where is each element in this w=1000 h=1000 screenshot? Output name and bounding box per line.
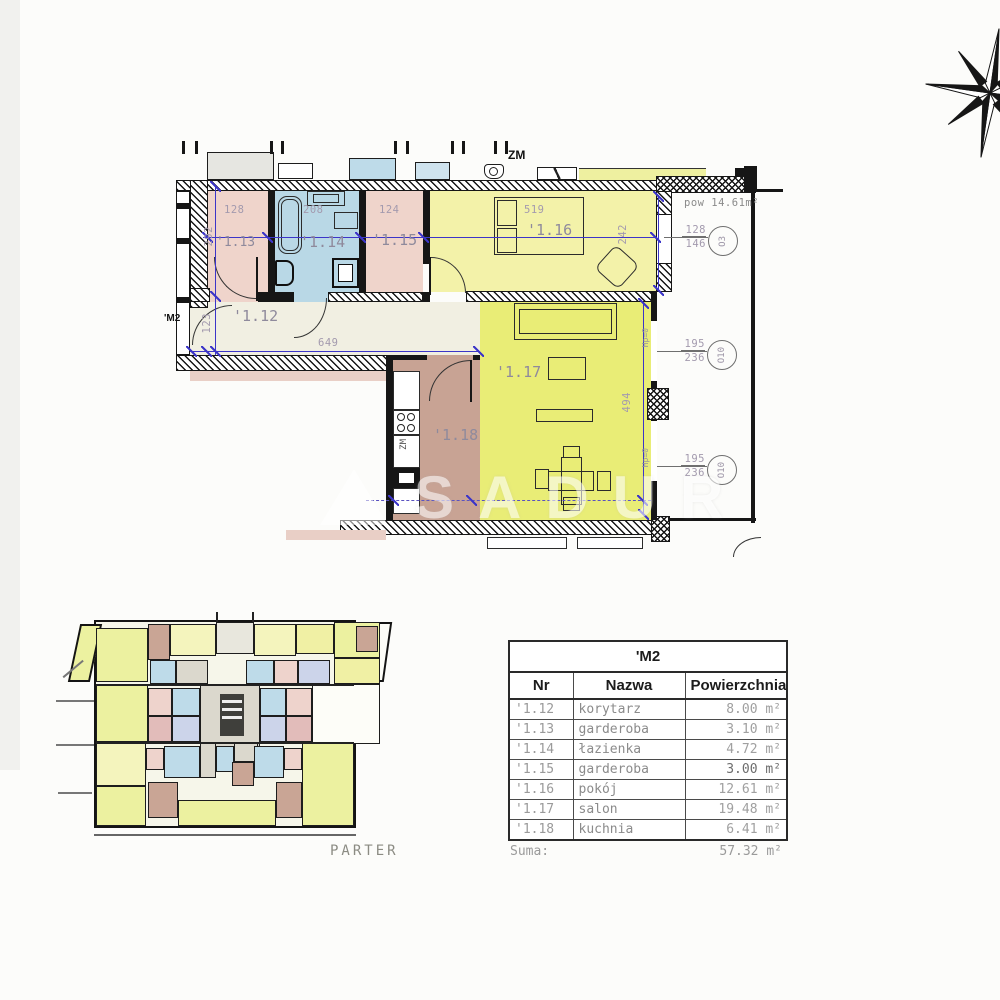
overview-room-block xyxy=(274,660,298,684)
overview-room-block xyxy=(356,626,378,652)
dim-tick xyxy=(201,346,212,357)
window2-h: 236 xyxy=(679,352,705,364)
room-name: garderoba xyxy=(573,720,685,740)
room-name: pokój xyxy=(573,780,685,800)
wall-kitchen-top-a xyxy=(393,355,427,360)
sum-value: 57.32 m² xyxy=(719,844,782,859)
wall-stub xyxy=(505,141,508,154)
bath-cabinet xyxy=(334,212,358,229)
stove-burner xyxy=(397,424,405,432)
overview-room-block xyxy=(254,746,284,778)
area-value: 4.72 xyxy=(726,742,757,757)
room-nr: '1.13 xyxy=(509,720,573,740)
overview-caption: PARTER xyxy=(330,843,399,859)
overview-room-block xyxy=(302,742,354,826)
dim-128: 128 xyxy=(224,204,244,216)
room-area: 12.61 m² xyxy=(685,780,787,800)
overview-room-block xyxy=(286,716,312,742)
neighbor-door-arc xyxy=(733,537,761,557)
wall-bottom xyxy=(340,520,670,535)
area-value: 6.41 xyxy=(726,822,757,837)
table-row: '1.18 kuchnia 6.41 m² xyxy=(509,820,787,841)
overview-room-block xyxy=(146,748,164,770)
wall-1-13-1-14 xyxy=(268,191,275,302)
room-area: 6.41 m² xyxy=(685,820,787,841)
wall-corridor-top-b xyxy=(328,292,423,302)
dim-line-dashed xyxy=(366,500,651,501)
area-unit: m² xyxy=(765,742,781,757)
neighbor-bottom-fixture-2 xyxy=(577,537,643,549)
stove-burner xyxy=(397,413,405,421)
dim-tick xyxy=(388,495,399,506)
table-sum-row: Suma: 57.32 m² xyxy=(508,841,786,859)
kitchen-zm-label: ZM xyxy=(399,439,409,450)
wall-1-14-1-15 xyxy=(359,191,366,302)
neighbor-strip-below xyxy=(190,371,390,381)
wall-stub xyxy=(451,141,454,154)
room-area: 19.48 m² xyxy=(685,800,787,820)
wall-stub xyxy=(462,141,465,154)
stove-burner xyxy=(407,424,415,432)
overview-room-block xyxy=(164,746,200,778)
area-unit: m² xyxy=(765,722,781,737)
dim-tick xyxy=(653,191,664,202)
room-area: 3.00 m² xyxy=(685,760,787,780)
room-name: korytarz xyxy=(573,699,685,720)
col-header-name: Nazwa xyxy=(573,672,685,699)
overview-room-block xyxy=(260,688,286,716)
overview-room-block xyxy=(172,688,200,716)
dining-chair-right xyxy=(597,471,611,491)
wall-corridor-top-a xyxy=(258,292,294,302)
overview-survey-line xyxy=(56,744,94,746)
overview-room-block xyxy=(246,660,274,684)
dim-649: 649 xyxy=(318,337,338,349)
room-nr: '1.18 xyxy=(509,820,573,841)
window3-circle: O10 xyxy=(707,455,737,485)
tv-bench xyxy=(536,409,593,422)
wall-stub xyxy=(406,141,409,154)
zm-top-label: ZM xyxy=(508,148,525,162)
area-unit: m² xyxy=(765,702,781,717)
overview-survey-line xyxy=(56,700,94,702)
room-label-1-12: '1.12 xyxy=(233,307,278,325)
table-row: '1.16 pokój 12.61 m² xyxy=(509,780,787,800)
washbasin-inner xyxy=(313,194,339,203)
area-table-wrap: 'M2 Nr Nazwa Powierzchnia '1.12 korytarz… xyxy=(508,640,786,859)
area-value: 8.00 xyxy=(726,702,757,717)
col-header-area: Powierzchnia xyxy=(685,672,787,699)
area-value: 3.10 xyxy=(726,722,757,737)
room-nr: '1.14 xyxy=(509,740,573,760)
dim-tick xyxy=(355,232,366,243)
overview-entry-stub xyxy=(216,612,218,622)
area-unit: m² xyxy=(765,762,781,777)
kitchen-cabinet-a xyxy=(393,371,420,410)
dim-292: 292 xyxy=(203,226,215,246)
neighbor-top-gray xyxy=(207,152,274,180)
coffee-table xyxy=(548,357,586,380)
room-nr: '1.15 xyxy=(509,760,573,780)
terrace-right-line xyxy=(751,193,755,523)
dim-tick xyxy=(466,495,477,506)
wall-stub xyxy=(182,141,185,154)
overview-room-block xyxy=(284,748,302,770)
overview-entry-stub xyxy=(252,612,254,622)
dim-line-corridor xyxy=(190,351,480,352)
window3-h: 236 xyxy=(679,467,705,479)
dining-chair-top xyxy=(563,446,580,458)
neighbor-toilet-bowl xyxy=(489,167,498,176)
table-row: '1.12 korytarz 8.00 m² xyxy=(509,699,787,720)
wall-1-13-bottom-stub xyxy=(190,288,210,302)
dim-line-left-vertical xyxy=(215,186,216,355)
neighbor-top-fixture xyxy=(278,163,313,179)
sum-unit: m² xyxy=(766,844,782,859)
sill-note-1: Hp=0 xyxy=(641,328,650,347)
dim-tick xyxy=(262,232,273,243)
floor-plan-sheet: ZM pow 14.61m² xyxy=(0,0,1000,1000)
dim-519: 519 xyxy=(524,204,544,216)
window-bar xyxy=(176,238,190,244)
overview-room-block xyxy=(148,688,172,716)
dim-123: 123 xyxy=(201,313,213,333)
wall-stub xyxy=(270,141,273,154)
bed-pillow-2 xyxy=(497,228,517,253)
window2-code: O10 xyxy=(717,347,727,363)
overview-room-block xyxy=(148,782,178,818)
overview-room-block xyxy=(96,684,148,742)
area-value: 3.00 xyxy=(726,762,757,777)
neighbor-bottom-pink xyxy=(286,530,386,540)
neighbor-bottom-fixture-1 xyxy=(487,537,567,549)
dim-line-1-16-vertical xyxy=(658,196,659,290)
overview-survey-line xyxy=(58,792,92,794)
table-title: 'M2 xyxy=(509,641,787,672)
sum-label: Suma: xyxy=(510,844,549,859)
room-name: kuchnia xyxy=(573,820,685,841)
area-value: 12.61 xyxy=(718,782,757,797)
window1-w: 128 xyxy=(680,224,706,236)
room-nr: '1.16 xyxy=(509,780,573,800)
overview-room-block xyxy=(172,716,200,742)
terrace-area-label: pow 14.61m² xyxy=(684,197,759,209)
window2-fraction xyxy=(681,350,705,351)
door-leaf-1-13 xyxy=(256,257,258,301)
door-leaf-kitchen xyxy=(470,360,472,402)
dining-chair-left xyxy=(535,469,549,489)
overview-room-block xyxy=(286,688,312,716)
overview-base-line xyxy=(94,834,356,836)
neighbor-sink xyxy=(537,167,577,180)
wall-stub xyxy=(394,141,397,154)
dim-494: 494 xyxy=(621,392,633,412)
room-label-1-15: '1.15 xyxy=(372,231,417,249)
overview-room-block xyxy=(216,622,254,654)
sum-number: 57.32 xyxy=(719,844,758,859)
area-unit: m² xyxy=(765,822,781,837)
window3-w: 195 xyxy=(679,453,705,465)
room-label-1-13: '1.13 xyxy=(216,235,255,250)
dim-tick xyxy=(210,181,221,192)
kitchen-sink-inner xyxy=(399,473,414,483)
overview-room-block xyxy=(200,742,216,778)
window-bar xyxy=(176,203,190,209)
wall-salon-pier xyxy=(647,388,669,420)
window-salon-2 xyxy=(651,420,657,482)
room-label-1-16: '1.16 xyxy=(527,221,572,239)
overview-divider xyxy=(96,742,354,744)
window-column-left xyxy=(176,191,190,355)
bathtub-inner xyxy=(281,199,299,251)
table-row: '1.15 garderoba 3.00 m² xyxy=(509,760,787,780)
area-table: 'M2 Nr Nazwa Powierzchnia '1.12 korytarz… xyxy=(508,640,788,841)
dim-tick xyxy=(210,291,221,302)
room-label-1-17: '1.17 xyxy=(496,363,541,381)
dim-tick xyxy=(638,509,649,520)
dim-242: 242 xyxy=(617,224,629,244)
overview-room-block xyxy=(232,762,254,786)
room-name: salon xyxy=(573,800,685,820)
wall-stub xyxy=(494,141,497,154)
overview-room-block xyxy=(298,660,330,684)
wall-1-15-1-16 xyxy=(423,191,430,264)
overview-room-block xyxy=(148,716,172,742)
overview-stair-line xyxy=(222,716,242,719)
window2-w: 195 xyxy=(679,338,705,350)
sill-note-2: Hp=0 xyxy=(641,448,650,467)
overview-room-block xyxy=(260,716,286,742)
door-leaf-1-16 xyxy=(429,257,431,295)
table-row: '1.17 salon 19.48 m² xyxy=(509,800,787,820)
overview-room-block xyxy=(254,624,296,656)
watermark-logo-icon xyxy=(320,469,388,525)
table-row: '1.14 łazienka 4.72 m² xyxy=(509,740,787,760)
sofa-seat xyxy=(519,309,612,334)
toilet xyxy=(275,260,294,286)
overview-stair-line xyxy=(222,708,242,711)
overview-room-block xyxy=(334,658,380,684)
wall-corridor-bottom xyxy=(176,355,390,371)
overview-room-block xyxy=(178,800,276,826)
dim-tick xyxy=(473,346,484,357)
neighbor-top-blue1 xyxy=(349,158,396,180)
area-value: 19.48 xyxy=(718,802,757,817)
room-area: 4.72 m² xyxy=(685,740,787,760)
overview-divider xyxy=(96,684,354,686)
compass-rose-icon xyxy=(925,18,1000,178)
bed-pillow-1 xyxy=(497,200,517,226)
col-header-nr: Nr xyxy=(509,672,573,699)
overview-room-block xyxy=(148,624,170,660)
dining-table-h xyxy=(548,471,594,491)
terrace-bottom-line xyxy=(668,518,756,521)
dim-tick xyxy=(638,298,649,309)
room-label-1-14: '1.14 xyxy=(300,233,345,251)
window1-h: 146 xyxy=(680,238,706,250)
stove-burner xyxy=(407,413,415,421)
room-area: 8.00 m² xyxy=(685,699,787,720)
window-bar xyxy=(176,297,190,303)
overview-room-block xyxy=(96,628,148,682)
overview-room-block xyxy=(150,660,176,684)
dim-tick xyxy=(653,285,664,296)
room-area: 3.10 m² xyxy=(685,720,787,740)
wall-stub xyxy=(281,141,284,154)
dim-tick xyxy=(637,495,648,506)
window1-code: O3 xyxy=(718,236,728,247)
terrace-stub xyxy=(755,189,783,192)
room-name: łazienka xyxy=(573,740,685,760)
room-label-1-18: '1.18 xyxy=(433,426,478,444)
dim-208: 208 xyxy=(303,204,323,216)
area-unit: m² xyxy=(765,782,781,797)
overview-stair-line xyxy=(222,700,242,703)
window3-code: O10 xyxy=(717,462,727,478)
washing-machine-inner xyxy=(338,264,353,282)
room-nr: '1.12 xyxy=(509,699,573,720)
overview-room-block xyxy=(276,782,302,818)
wall-salon-top xyxy=(466,291,656,302)
overview-room-block xyxy=(176,660,208,684)
window3-fraction xyxy=(681,465,705,466)
dim-124: 124 xyxy=(379,204,399,216)
scan-edge xyxy=(0,0,20,770)
table-row: '1.13 garderoba 3.10 m² xyxy=(509,720,787,740)
window2-circle: O10 xyxy=(707,340,737,370)
wall-stub xyxy=(195,141,198,154)
window1-circle: O3 xyxy=(708,226,738,256)
window1-fraction xyxy=(682,236,706,237)
dim-tick xyxy=(186,346,197,357)
overview-room-block xyxy=(296,624,334,654)
overview-room-block xyxy=(96,786,146,826)
overview-room-block-white xyxy=(312,684,380,744)
overview-room-block xyxy=(96,742,146,786)
room-nr: '1.17 xyxy=(509,800,573,820)
room-name: garderoba xyxy=(573,760,685,780)
area-unit: m² xyxy=(765,802,781,817)
neighbor-top-blue2 xyxy=(415,162,450,180)
dim-tick xyxy=(418,232,429,243)
overview-room-block xyxy=(170,624,216,656)
unit-label-m2: 'M2 xyxy=(164,313,180,324)
